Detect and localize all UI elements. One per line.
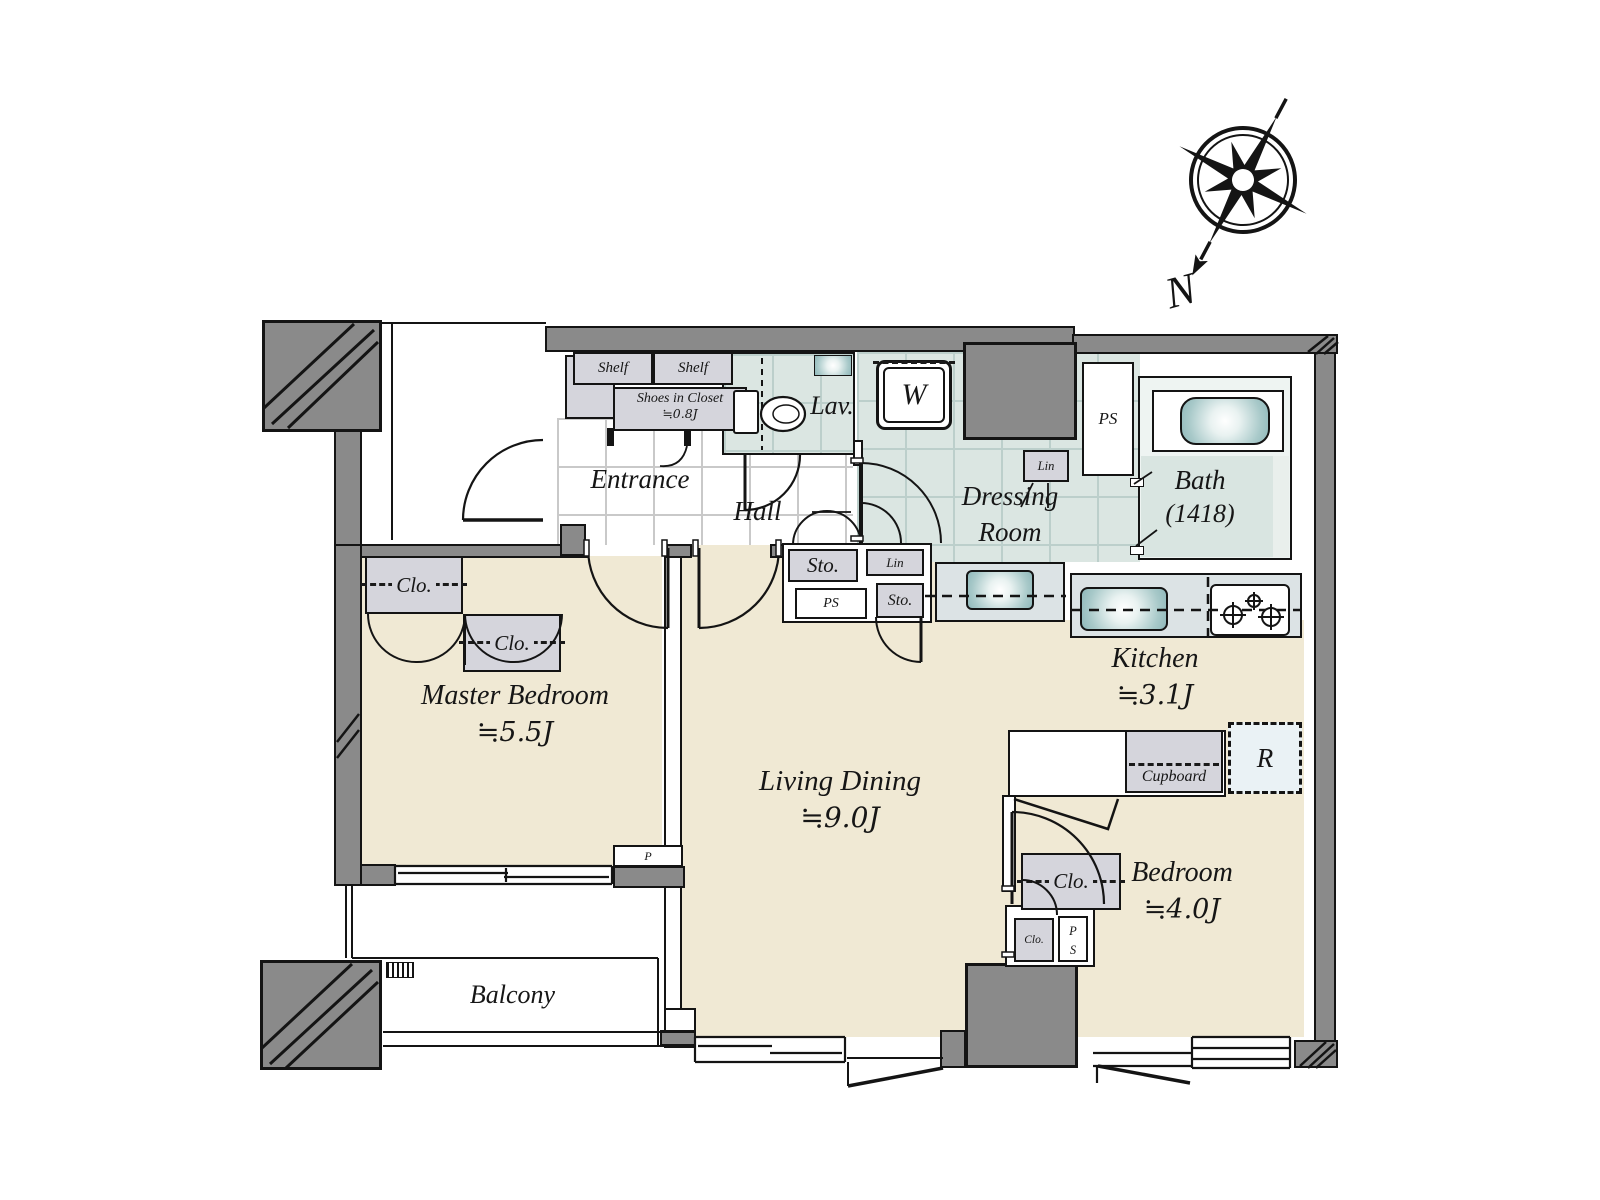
living-dining-label-text: Living Dining [735,762,945,800]
bath-label-text: Bath [1135,464,1265,498]
entrance-label: Entrance [555,462,725,498]
washing-machine-label-wrap: W [879,363,949,427]
pipe-space-bedroom-s: S [1060,941,1086,960]
linen-dressing-label: Lin [1038,459,1055,474]
wall-top-right [1072,334,1338,354]
entrance-label-text: Entrance [591,464,690,494]
dressing-room-label: Dressing Room [920,478,1100,551]
hall-label: Hall [705,494,810,530]
bedroom-label: Bedroom ≒4.0J [1082,855,1282,928]
shaft-block [963,342,1077,440]
compass-hub [1225,162,1260,197]
shelf-left-label: Shelf [598,360,628,377]
balcony-label-text: Balcony [470,980,555,1009]
washing-machine: W [876,360,952,430]
linen-hall: Lin [866,549,924,576]
pipe-space-top-label: PS [1099,409,1118,429]
lavatory-label-text: Lav. [810,391,854,420]
porch-outline [382,323,546,540]
shoes-in-closet: Shoes in Closet ≒0.8J [613,387,747,431]
cupboard-label: Cupboard [1142,768,1206,786]
pipe-duct: P [613,845,683,867]
linen-hall-label: Lin [886,555,903,571]
lavatory-sink [814,355,852,376]
toilet-tank [733,390,759,434]
closet-master-right-label: Clo. [490,631,534,656]
kitchen-label: Kitchen ≒3.1J [1070,641,1240,714]
wall-left-upper [334,430,362,548]
kitchen-label-text: Kitchen [1070,641,1240,678]
wall-master-window-left [360,864,396,886]
stove [1210,584,1290,636]
living-dining-window [695,1037,943,1086]
kitchen-size-text: ≒3.1J [1070,678,1240,714]
washbasin-sink [966,570,1034,610]
compass-arrow-head [1186,254,1208,278]
storage-hall-2-label: Sto. [888,592,912,610]
compass-arrow-shaft [1201,99,1286,260]
master-bedroom-label: Master Bedroom ≒5.5J [395,678,635,751]
wall-pier-window-left [940,1030,966,1068]
floor-plan: Shelf Shelf Shoes in Closet ≒0.8J W Lin … [0,0,1600,1200]
wall-hall-corner [560,524,586,556]
compass-ring-outer [1173,110,1314,251]
living-dining-label: Living Dining ≒9.0J [735,762,945,837]
closet-master-left-label: Clo. [392,573,436,598]
pillar-top-left [262,320,382,432]
shelf-right-label: Shelf [678,360,708,377]
washing-machine-label: W [898,378,931,412]
wall-hall-dressing-stub [853,440,863,466]
bedroom-size-text: ≒4.0J [1082,892,1282,928]
wall-left-master [334,544,362,886]
front-door [463,440,543,520]
compass-north-label: N [1159,263,1204,319]
lavatory-label: Lav. [796,389,868,423]
bath-door-tick-bottom [1130,546,1144,555]
wall-living-bedroom-divider [1002,795,1016,892]
closet-master-right: Clo. [463,614,561,672]
dressing-room-line2: Room [920,514,1100,550]
bath-size-text: (1418) [1135,498,1265,531]
closet-master-left: Clo. [365,556,463,614]
bath-label: Bath (1418) [1135,464,1265,530]
balcony-drain-grille [386,962,414,978]
wall-corner-bottom-right [1294,1040,1338,1068]
storage-hall-1: Sto. [788,549,858,582]
dressing-room-line1: Dressing [920,478,1100,514]
master-bedroom-label-text: Master Bedroom [395,678,635,715]
pillar-window-middle [965,963,1078,1068]
storage-hall-2: Sto. [876,583,924,618]
shoes-closet-size: ≒0.8J [615,405,745,423]
wall-balcony-corner [660,1030,696,1046]
bathtub [1180,397,1270,445]
bedroom-label-text: Bedroom [1082,855,1282,892]
pipe-space-hall-label: PS [823,596,839,612]
pipe-duct-label: P [644,849,651,864]
shelf-left: Shelf [573,352,653,385]
master-bedroom-size-text: ≒5.5J [395,715,635,751]
compass: N [1129,65,1350,319]
kitchen-sink [1080,587,1168,631]
pillar-bottom-left [260,960,382,1070]
balcony-label: Balcony [440,978,585,1012]
hall-label-text: Hall [733,496,781,526]
closet-bedroom-label: Clo. [1024,934,1044,946]
refrigerator-label: R [1257,743,1274,774]
wall-right [1314,352,1336,1046]
closet-bedroom: Clo. [1014,918,1054,962]
bedroom-windows [1093,1037,1290,1083]
wall-below-pipe-duct [613,866,685,888]
master-bedroom-window [395,866,612,884]
wall-master-living-divider [664,556,682,1012]
compass-ring-inner [1182,119,1304,241]
compass-star [1146,83,1341,278]
pipe-space-hall: PS [795,588,867,619]
bath-side-strip [1273,456,1289,557]
cupboard-label-wrap: Cupboard [1127,763,1221,791]
storage-hall-1-label: Sto. [807,553,839,578]
pipe-space-top: PS [1082,362,1134,476]
refrigerator: R [1228,722,1302,794]
cupboard: Cupboard [1125,730,1223,793]
living-dining-size-text: ≒9.0J [735,800,945,837]
shelf-right: Shelf [653,352,733,385]
